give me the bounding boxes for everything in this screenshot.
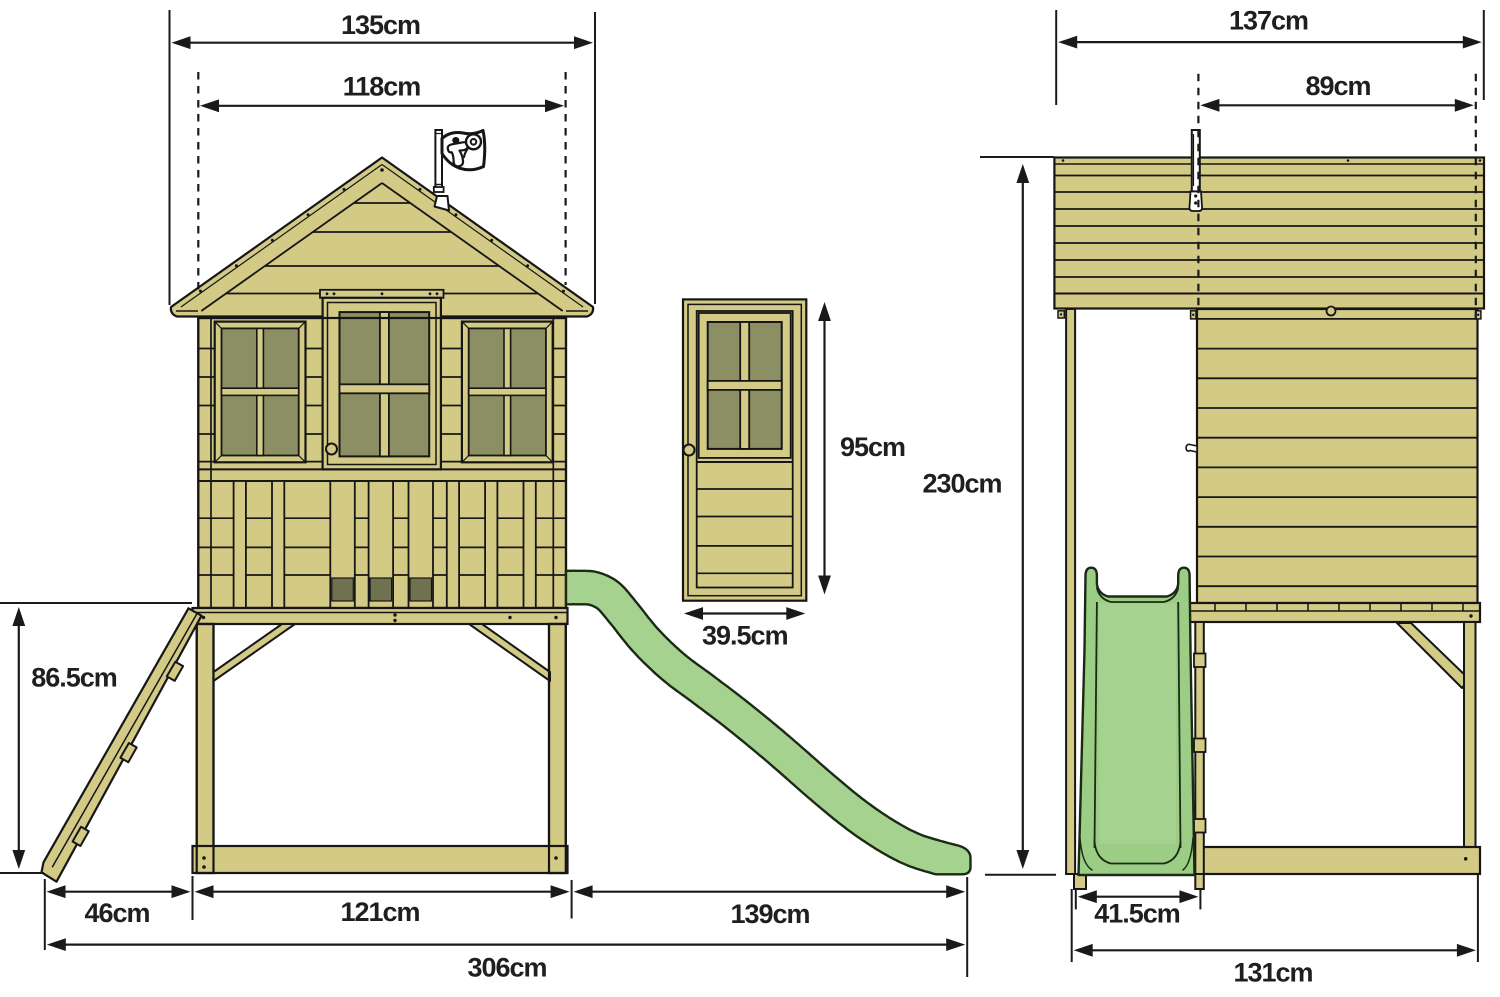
- svg-text:137cm: 137cm: [1229, 6, 1308, 36]
- svg-text:306cm: 306cm: [467, 953, 546, 983]
- svg-text:139cm: 139cm: [730, 899, 809, 929]
- svg-text:131cm: 131cm: [1233, 958, 1312, 988]
- svg-text:39.5cm: 39.5cm: [702, 621, 788, 651]
- svg-text:118cm: 118cm: [343, 72, 421, 102]
- svg-text:41.5cm: 41.5cm: [1094, 899, 1180, 929]
- svg-text:89cm: 89cm: [1305, 71, 1370, 101]
- svg-text:46cm: 46cm: [84, 898, 149, 928]
- svg-text:121cm: 121cm: [340, 897, 419, 927]
- svg-text:86.5cm: 86.5cm: [31, 663, 117, 693]
- svg-text:230cm: 230cm: [922, 469, 1001, 499]
- svg-text:135cm: 135cm: [341, 10, 420, 40]
- svg-text:95cm: 95cm: [840, 432, 905, 462]
